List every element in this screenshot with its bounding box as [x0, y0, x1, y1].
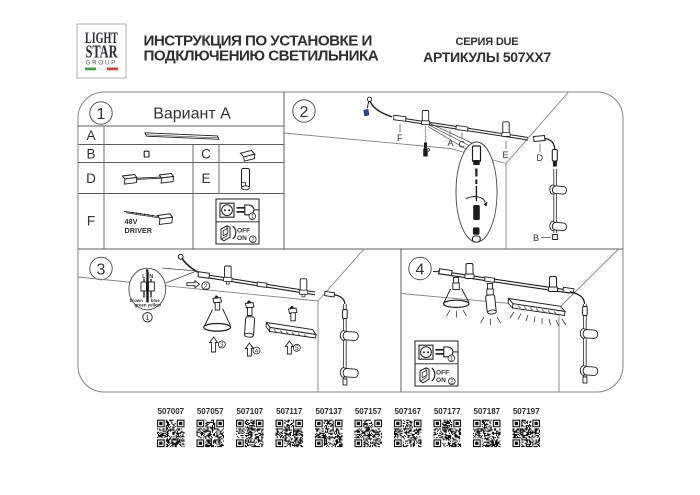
svg-text:ПОДКЛЮЧЕНИЮ СВЕТИЛЬНИКА: ПОДКЛЮЧЕНИЮ СВЕТИЛЬНИКА	[144, 48, 379, 65]
svg-text:B: B	[86, 147, 95, 162]
svg-text:507137: 507137	[315, 407, 342, 416]
svg-text:E: E	[201, 171, 210, 186]
svg-text:507197: 507197	[513, 407, 540, 416]
svg-text:3: 3	[220, 342, 224, 349]
svg-text:2: 2	[300, 104, 309, 121]
svg-text:green yellow: green yellow	[134, 303, 161, 308]
svg-text:1: 1	[145, 313, 149, 322]
svg-text:2: 2	[204, 283, 208, 290]
svg-text:B: B	[533, 233, 539, 243]
svg-text:507117: 507117	[276, 407, 303, 416]
svg-text:3: 3	[97, 262, 106, 279]
svg-text:1: 1	[97, 106, 106, 123]
svg-text:507187: 507187	[473, 407, 500, 416]
svg-text:Вариант А: Вариант А	[153, 106, 231, 123]
svg-text:D: D	[537, 153, 544, 163]
svg-text:A: A	[86, 128, 95, 143]
svg-text:C: C	[201, 147, 211, 162]
svg-text:STAR: STAR	[86, 41, 118, 61]
svg-text:4: 4	[255, 348, 259, 355]
svg-text:507107: 507107	[236, 407, 263, 416]
svg-text:DRIVER: DRIVER	[125, 226, 153, 235]
svg-text:5: 5	[295, 345, 299, 352]
svg-text:F: F	[87, 214, 95, 229]
svg-text:A: A	[448, 138, 454, 148]
svg-text:GROUP: GROUP	[86, 61, 118, 67]
svg-text:48V: 48V	[125, 217, 138, 226]
svg-text:E: E	[503, 150, 509, 160]
svg-text:507167: 507167	[394, 407, 421, 416]
svg-text:АРТИКУЛЫ 507ХХ7: АРТИКУЛЫ 507ХХ7	[423, 49, 551, 65]
svg-text:F: F	[397, 133, 403, 143]
svg-text:СЕРИЯ DUE: СЕРИЯ DUE	[456, 36, 519, 48]
svg-text:C: C	[459, 140, 466, 150]
svg-text:4: 4	[416, 262, 425, 279]
svg-text:507057: 507057	[197, 407, 224, 416]
svg-text:507177: 507177	[434, 407, 461, 416]
svg-text:507007: 507007	[157, 407, 184, 416]
svg-text:D: D	[86, 171, 96, 186]
svg-text:507157: 507157	[355, 407, 382, 416]
